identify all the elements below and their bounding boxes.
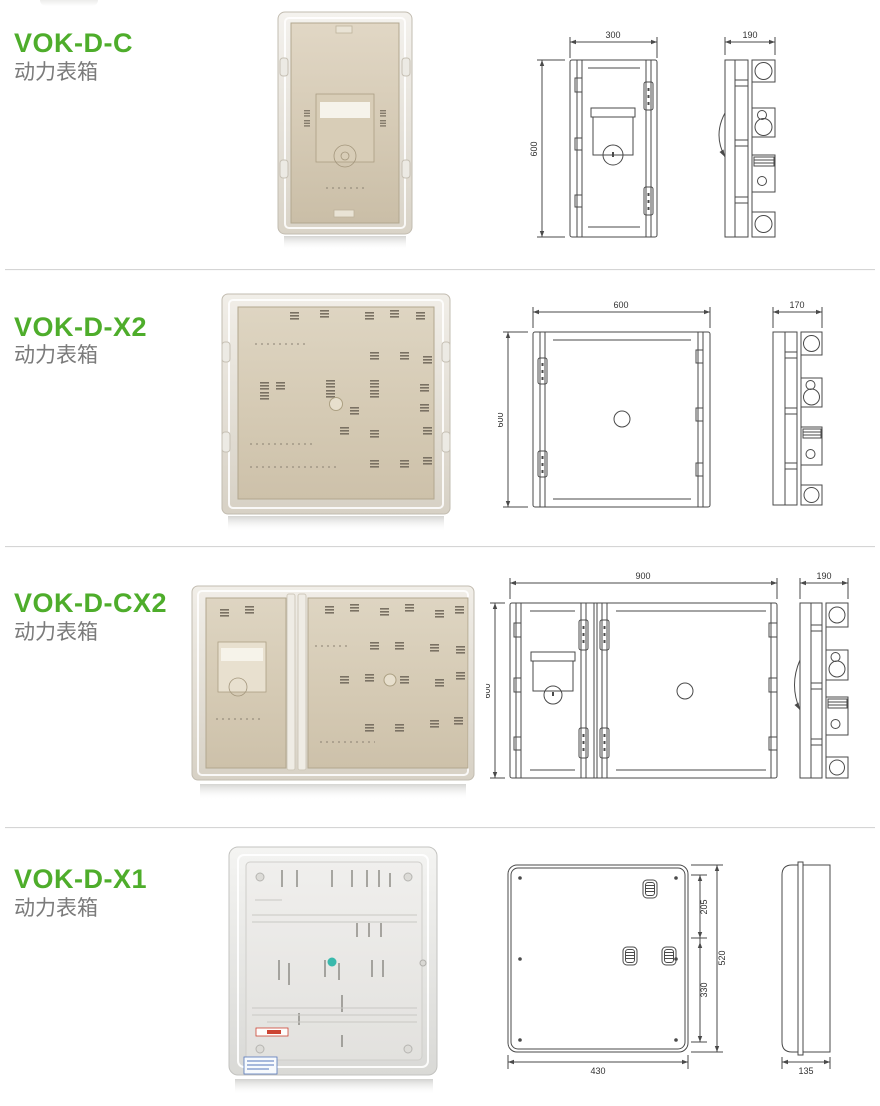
dim-depth: 190 [816,571,831,581]
row-divider [5,546,875,548]
dim-width: 600 [613,300,628,310]
product-category: 动力表箱 [14,61,98,84]
product-photo [227,845,441,1103]
product-category: 动力表箱 [14,344,98,367]
front-view-drawing: 300 600 [525,22,700,247]
product-model: VOK-D-X1 [14,866,147,893]
product-photo [190,584,476,819]
dim-width: 430 [590,1066,605,1076]
product-photo [220,292,452,542]
front-view-drawing: 900 600 [486,561,786,783]
dim-upper-offset: 205 [699,899,709,914]
row-divider [5,827,875,829]
dim-depth: 135 [798,1066,813,1076]
dim-height: 600 [486,683,492,698]
dim-depth: 190 [742,30,757,40]
side-view-drawing: 135 [773,853,863,1098]
side-view-drawing: 170 [765,298,835,516]
dim-height: 600 [529,141,539,156]
product-category: 动力表箱 [14,897,98,920]
row-divider [5,269,875,271]
side-view-drawing: 190 [786,561,866,783]
product-photo [276,10,414,255]
catalog-page: { "page": { "colors": { "accent-green": … [0,0,880,1106]
front-view-drawing: 600 600 [498,298,718,516]
side-view-drawing: 190 [700,22,785,247]
dim-lower-offset: 330 [699,982,709,997]
page-edge-artifact [40,0,98,6]
product-category: 动力表箱 [14,621,98,644]
front-view-drawing: 430 205 330 520 [495,853,745,1098]
product-model: VOK-D-CX2 [14,590,167,617]
product-model: VOK-D-X2 [14,314,147,341]
dim-depth: 170 [789,300,804,310]
product-model: VOK-D-C [14,30,133,57]
dim-width: 300 [605,30,620,40]
dim-height: 600 [498,412,505,427]
dim-width: 900 [635,571,650,581]
dim-height: 520 [717,950,727,965]
